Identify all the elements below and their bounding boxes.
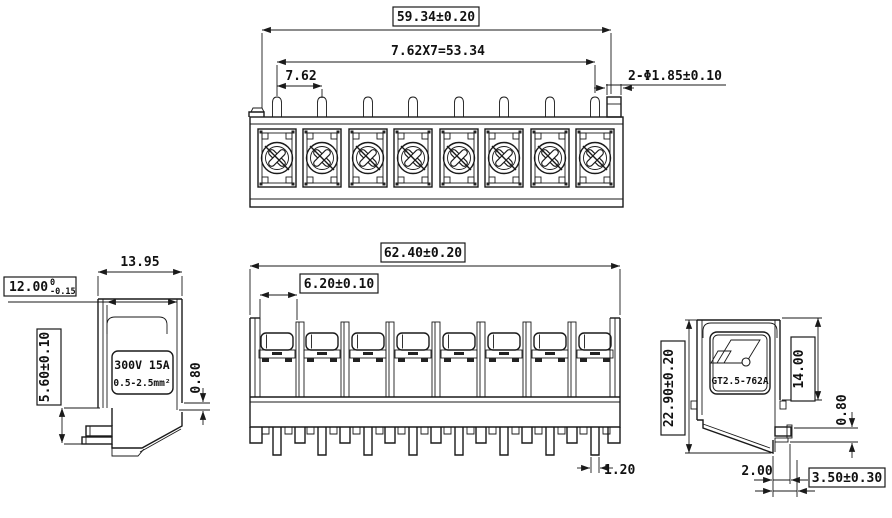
- dim-text-upper-height: 14.00: [792, 349, 807, 388]
- terminal-screw-icon: [258, 129, 296, 187]
- dim-text-total-height: 22.90±0.20: [662, 349, 677, 427]
- dim-text-body-width: 13.95: [120, 255, 159, 270]
- screw-front-icon: [441, 333, 477, 362]
- dim-text-inner-width-tol-dn: -0.15: [50, 287, 76, 297]
- screw-front-icon: [486, 333, 522, 362]
- dim-body-width: 13.95: [98, 255, 182, 296]
- dim-pitch: 7.62: [277, 69, 322, 98]
- dim-step-left: 0.80: [179, 362, 210, 425]
- dim-text-mounting-holes: 2-Φ1.85±0.10: [628, 69, 722, 84]
- dim-text-inner-width: 12.00: [9, 280, 48, 295]
- top-view: 59.34±0.20 7.62X7=53.34 7.62 2-Φ1.85±0.1…: [249, 7, 726, 207]
- solder-pin-right: [775, 425, 792, 442]
- terminal-screw-icon: [349, 129, 387, 187]
- dim-text-pitch: 7.62: [285, 69, 316, 84]
- dim-upper-height: 14.00: [782, 318, 822, 401]
- screw-front-icon: [395, 333, 431, 362]
- screw-front-icon: [350, 333, 386, 362]
- dim-pitch-total: 7.62X7=53.34: [277, 44, 595, 96]
- dim-pin-width: 1.20: [577, 457, 635, 478]
- terminal-screw-icon: [394, 129, 432, 187]
- screw-front-icon: [304, 333, 340, 362]
- rating-label-voltage: 300V 15A: [114, 358, 169, 372]
- terminal-screw-icon: [485, 129, 523, 187]
- right-end-boss: [607, 97, 621, 117]
- dim-pin-offset: 3.50±0.30: [755, 460, 885, 497]
- screw-front-icon: [532, 333, 568, 362]
- dim-pin-thickness: 0.80: [790, 394, 858, 458]
- top-view-terminal-cells: [258, 129, 614, 187]
- model-number-text: GT2.5-762A: [711, 376, 768, 387]
- terminal-screw-icon: [576, 129, 614, 187]
- dim-text-pin-width: 1.20: [604, 463, 635, 478]
- terminal-screw-icon: [303, 129, 341, 187]
- brand-logo-icon: [711, 340, 760, 366]
- dim-text-pin-thickness: 0.80: [835, 394, 850, 425]
- dim-pin-height: 5.60±0.10: [37, 329, 100, 444]
- dim-text-pin-offset: 3.50±0.30: [812, 471, 883, 486]
- dim-wire-opening: 6.20±0.10: [260, 274, 378, 320]
- screw-front-icon: [577, 333, 613, 362]
- dim-text-wire-opening: 6.20±0.10: [304, 277, 375, 292]
- dim-inner-width: 12.00 0 -0.15: [4, 277, 177, 302]
- terminal-screw-icon: [440, 129, 478, 187]
- dim-text-total-length: 59.34±0.20: [397, 10, 475, 25]
- right-side-view: GT2.5-762A 22.90±0.20 14.00 0.80: [661, 318, 885, 497]
- front-view-barriers: [296, 322, 576, 397]
- rating-label: 300V 15A 0.5-2.5mm²: [112, 351, 173, 394]
- technical-drawing-page: 59.34±0.20 7.62X7=53.34 7.62 2-Φ1.85±0.1…: [0, 0, 892, 518]
- dim-mounting-holes: 2-Φ1.85±0.10: [594, 69, 726, 95]
- front-view: 62.40±0.20 6.20±0.10 1.20: [250, 243, 635, 478]
- top-view-body-outline: [249, 97, 623, 207]
- dim-text-pin-height: 5.60±0.10: [38, 332, 53, 403]
- terminal-screw-icon: [531, 129, 569, 187]
- dim-text-front-total: 62.40±0.20: [384, 246, 462, 261]
- solder-pin-side: [82, 426, 112, 444]
- dim-text-pin-length: 2.00: [741, 464, 772, 479]
- rating-label-wire-range: 0.5-2.5mm²: [113, 378, 170, 389]
- screw-front-icon: [259, 333, 295, 362]
- model-label: GT2.5-762A: [710, 332, 770, 394]
- front-view-screws: [259, 333, 613, 362]
- left-side-view: 300V 15A 0.5-2.5mm² 13.95 12.00 0 -0.15 …: [4, 255, 210, 456]
- front-view-solder-pins: [250, 427, 620, 455]
- top-view-pitch-pins: [273, 97, 600, 117]
- dim-text-pitch-total: 7.62X7=53.34: [391, 44, 485, 59]
- left-end-boss: [249, 112, 264, 117]
- dim-text-step-left: 0.80: [189, 362, 204, 393]
- terminal-block-drawing: 59.34±0.20 7.62X7=53.34 7.62 2-Φ1.85±0.1…: [0, 0, 892, 518]
